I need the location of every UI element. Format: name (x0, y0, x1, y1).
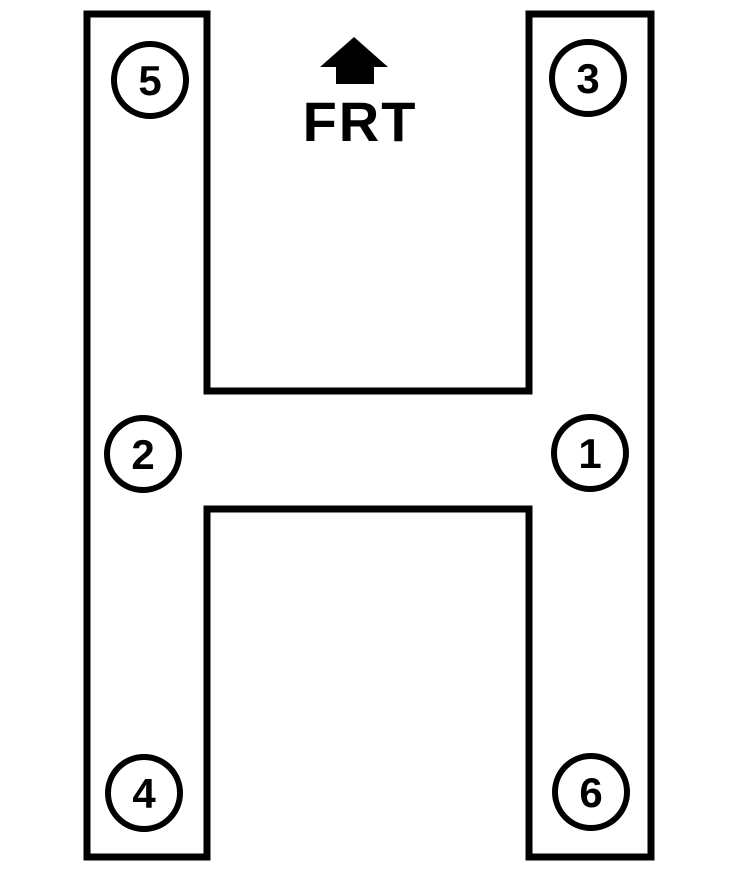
cylinder-2-marker: 2 (107, 418, 179, 490)
front-label: FRT (303, 90, 418, 153)
cylinder-1-label: 1 (578, 430, 601, 477)
cylinder-3-marker: 3 (552, 42, 624, 114)
diagram-svg: FRT 5 3 2 1 4 6 (0, 0, 733, 877)
cylinder-3-label: 3 (576, 55, 599, 102)
front-indicator: FRT (303, 37, 418, 153)
cylinder-5-label: 5 (138, 57, 161, 104)
cylinder-location-diagram: FRT 5 3 2 1 4 6 (0, 0, 733, 877)
cylinder-4-label: 4 (132, 770, 156, 817)
cylinder-1-marker: 1 (554, 417, 626, 489)
cylinder-4-marker: 4 (108, 757, 180, 829)
cylinder-6-marker: 6 (555, 756, 627, 828)
up-arrow-icon (320, 37, 388, 84)
cylinder-2-label: 2 (131, 431, 154, 478)
cylinder-5-marker: 5 (114, 44, 186, 116)
cylinder-6-label: 6 (579, 769, 602, 816)
